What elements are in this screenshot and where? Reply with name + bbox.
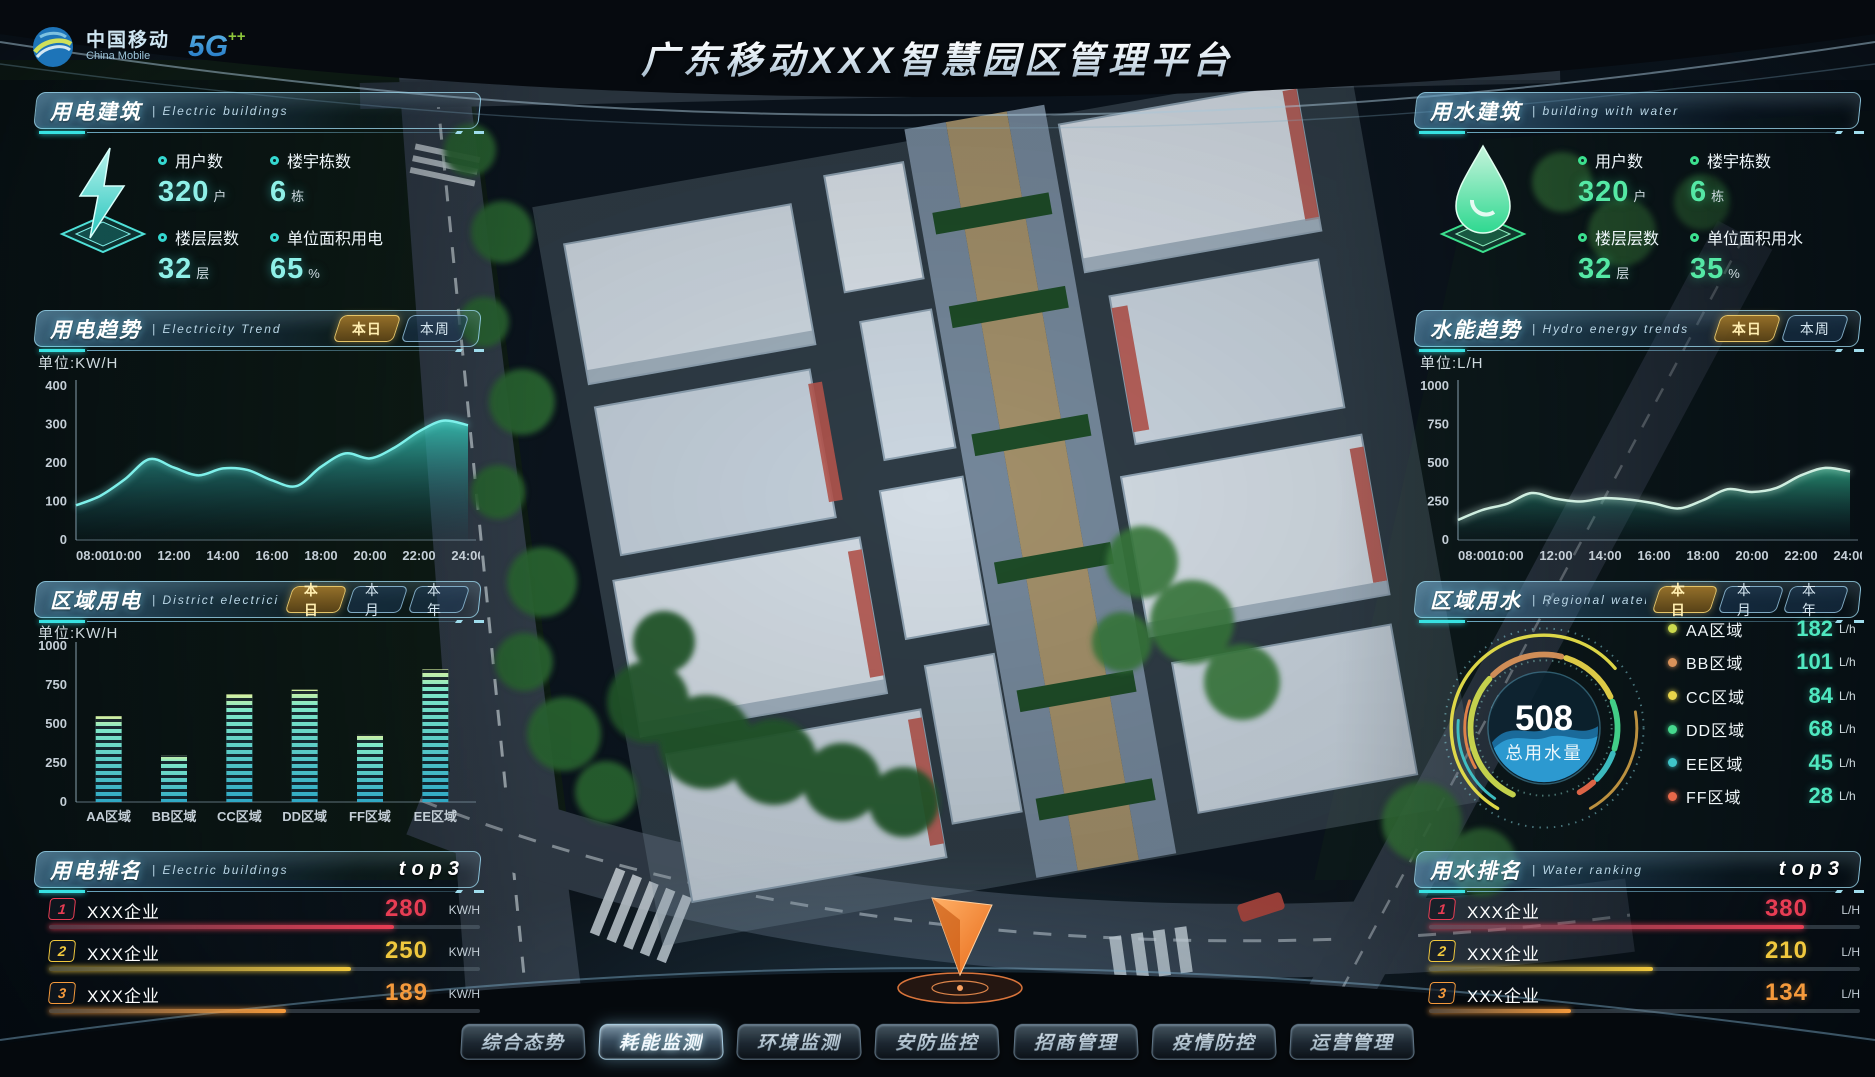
district-electricity-chart: 02505007501000AA区域BB区域CC区域DD区域FF区域EE区域: [30, 638, 480, 828]
panel-title: 用水排名: [1430, 855, 1522, 885]
legend-dot-icon: [1668, 725, 1677, 734]
stat-floors: 楼层层数 32层: [1578, 225, 1690, 286]
panel-title: 区域用电: [50, 585, 142, 615]
hydro-trend-unit: 单位:L/H: [1420, 352, 1484, 373]
stat-value: 65: [270, 253, 304, 285]
rank-name: XXX企业: [1467, 940, 1540, 965]
svg-text:BB区域: BB区域: [152, 809, 197, 824]
nav-tab-label: 安防监控: [895, 1029, 980, 1055]
svg-text:10:00: 10:00: [108, 548, 141, 563]
tab-month-district-electricity[interactable]: 本月: [346, 586, 408, 613]
legend-dot-icon: [1668, 691, 1677, 700]
legend-name: FF区域: [1686, 784, 1742, 808]
legend-row: EE区域45L/h: [1668, 752, 1863, 773]
ranking-row: 2 XXX企业 250 KW/H: [35, 939, 480, 980]
legend-unit: L/h: [1839, 622, 1863, 636]
legend-name: BB区域: [1686, 650, 1743, 674]
rank-badge: 1: [1428, 898, 1456, 920]
rank-name: XXX企业: [87, 940, 160, 965]
rank-name: XXX企业: [87, 898, 160, 923]
stat-users: 用户数 320户: [1578, 148, 1690, 209]
svg-text:16:00: 16:00: [1637, 548, 1670, 563]
stat-value: 6: [1690, 176, 1707, 208]
nav-tab-label: 耗能监测: [619, 1029, 704, 1055]
ranking-row: 3 XXX企业 134 L/H: [1415, 981, 1860, 1022]
legend-value: 68: [1809, 716, 1833, 742]
legend-row: DD区域68L/h: [1668, 719, 1863, 740]
legend-dot-icon: [1668, 658, 1677, 667]
legend-dot-icon: [1668, 792, 1677, 801]
bottom-nav: 综合态势耗能监测环境监测安防监控招商管理疫情防控运营管理: [0, 1023, 1875, 1060]
svg-text:18:00: 18:00: [304, 548, 337, 563]
stat-value: 320: [1578, 176, 1629, 208]
nav-tab-label: 运营管理: [1309, 1029, 1394, 1055]
tab-year-regional-water[interactable]: 本年: [1783, 586, 1849, 613]
legend-unit: L/h: [1839, 655, 1863, 669]
stat-buildings: 楼宇栋数 6栋: [270, 148, 460, 209]
tab-week-electricity-trend[interactable]: 本周: [401, 315, 470, 342]
panel-subtitle: | Electricity Trend: [152, 322, 282, 336]
rank-progress-track: [1429, 967, 1860, 971]
rank-progress-track: [1429, 1009, 1860, 1013]
rank-progress-fill: [49, 925, 394, 929]
nav-tab-6[interactable]: 疫情防控: [1151, 1024, 1277, 1060]
legend-unit: L/h: [1839, 722, 1863, 736]
panel-electricity-trend-header: 用电趋势 | Electricity Trend 本日 本周: [35, 310, 480, 347]
svg-text:22:00: 22:00: [402, 548, 435, 563]
water-ranking-list: 1 XXX企业 380 L/H 2 XXX企业 210 L/H 3 XXX企业 …: [1415, 897, 1860, 1023]
electric-building-stats: 用户数 320户 楼宇栋数 6栋 楼层层数 32层 单位面积用电 65%: [158, 148, 460, 286]
stat-dot-icon: [158, 156, 167, 165]
stat-unit: %: [308, 266, 321, 281]
svg-text:500: 500: [45, 716, 67, 731]
nav-tab-4[interactable]: 安防监控: [875, 1024, 1001, 1060]
stat-label: 单位面积用电: [287, 225, 383, 249]
stat-value: 320: [158, 176, 209, 208]
rank-unit: KW/H: [449, 945, 480, 959]
rank-badge: 2: [48, 940, 76, 962]
rank-name: XXX企业: [87, 982, 160, 1007]
stat-label: 楼层层数: [1595, 225, 1659, 249]
svg-text:750: 750: [1427, 417, 1449, 432]
rank-unit: KW/H: [449, 903, 480, 917]
svg-text:250: 250: [1427, 494, 1449, 509]
panel-electric-building-header: 用电建筑 | Electric buildings: [35, 92, 480, 129]
stat-label: 楼宇栋数: [287, 148, 351, 172]
svg-text:12:00: 12:00: [157, 548, 190, 563]
svg-text:18:00: 18:00: [1686, 548, 1719, 563]
stat-dot-icon: [158, 233, 167, 242]
stat-dot-icon: [1690, 156, 1699, 165]
rank-value: 250: [385, 937, 428, 965]
rank-value: 134: [1765, 979, 1808, 1007]
svg-text:500: 500: [1427, 455, 1449, 470]
page-title: 广东移动XXX智慧园区管理平台: [0, 30, 1875, 84]
rank-progress-track: [49, 925, 480, 929]
panel-title: 用电趋势: [50, 314, 142, 344]
nav-tab-label: 疫情防控: [1171, 1029, 1256, 1055]
rank-value: 280: [385, 895, 428, 923]
lightning-icon: [48, 138, 158, 263]
svg-text:200: 200: [45, 455, 67, 470]
panel-water-ranking-header: 用水排名 | Water ranking top3: [1415, 851, 1860, 888]
total-water-gauge: 508 总用水量: [1428, 612, 1660, 844]
stat-unit: 层: [196, 266, 210, 281]
rank-value: 380: [1765, 895, 1808, 923]
stat-unit: 层: [1616, 266, 1630, 281]
svg-text:24:00: 24:00: [1833, 548, 1862, 563]
legend-unit: L/h: [1839, 756, 1863, 770]
svg-text:08:00: 08:00: [76, 548, 109, 563]
legend-name: EE区域: [1686, 751, 1743, 775]
rank-progress-track: [1429, 925, 1860, 929]
rank-progress-fill: [1429, 925, 1804, 929]
top3-badge: top3: [399, 858, 465, 881]
stat-unit-area-electricity: 单位面积用电 65%: [270, 225, 460, 286]
legend-unit: L/h: [1839, 689, 1863, 703]
stat-value: 35: [1690, 253, 1724, 285]
stat-unit: 户: [213, 189, 227, 204]
svg-text:DD区域: DD区域: [282, 809, 327, 824]
ranking-row: 1 XXX企业 280 KW/H: [35, 897, 480, 938]
svg-text:1000: 1000: [38, 638, 67, 653]
rank-unit: KW/H: [449, 987, 480, 1001]
dashboard-frame: 中国移动 China Mobile 5G ++ 广东移动XXX智慧园区管理平台 …: [0, 0, 1875, 1077]
legend-row: FF区域28L/h: [1668, 786, 1863, 807]
svg-text:14:00: 14:00: [206, 548, 239, 563]
rank-progress-fill: [49, 967, 351, 971]
nav-tab-7[interactable]: 运营管理: [1289, 1024, 1415, 1060]
rank-unit: L/H: [1841, 987, 1860, 1001]
legend-name: CC区域: [1686, 684, 1745, 708]
panel-subtitle: | Hydro energy trends: [1532, 322, 1689, 336]
rank-progress-fill: [49, 1009, 286, 1013]
ranking-row: 2 XXX企业 210 L/H: [1415, 939, 1860, 980]
ranking-row: 1 XXX企业 380 L/H: [1415, 897, 1860, 938]
rank-unit: L/H: [1841, 945, 1860, 959]
electricity-trend-unit: 单位:KW/H: [38, 352, 118, 373]
stat-value: 6: [270, 176, 287, 208]
svg-text:400: 400: [45, 378, 67, 393]
rank-name: XXX企业: [1467, 898, 1540, 923]
stat-unit-area-water: 单位面积用水 35%: [1690, 225, 1875, 286]
stat-dot-icon: [1578, 233, 1587, 242]
svg-text:100: 100: [45, 494, 67, 509]
stat-buildings: 楼宇栋数 6栋: [1690, 148, 1875, 209]
panel-title: 用电排名: [50, 855, 142, 885]
stat-dot-icon: [1578, 156, 1587, 165]
top3-badge: top3: [1779, 858, 1845, 881]
rank-progress-fill: [1429, 1009, 1571, 1013]
legend-value: 84: [1809, 683, 1833, 709]
svg-text:22:00: 22:00: [1784, 548, 1817, 563]
panel-title: 用水建筑: [1430, 96, 1522, 126]
stat-users: 用户数 320户: [158, 148, 270, 209]
svg-text:14:00: 14:00: [1588, 548, 1621, 563]
rank-value: 189: [385, 979, 428, 1007]
panel-title: 水能趋势: [1430, 314, 1522, 344]
panel-subtitle: | District electricity: [152, 593, 279, 607]
tab-today-district-electricity[interactable]: 本日: [284, 586, 346, 613]
svg-text:0: 0: [60, 532, 67, 547]
stat-label: 单位面积用水: [1707, 225, 1803, 249]
svg-text:16:00: 16:00: [255, 548, 288, 563]
stat-floors: 楼层层数 32层: [158, 225, 270, 286]
rank-name: XXX企业: [1467, 982, 1540, 1007]
svg-text:AA区域: AA区域: [86, 809, 131, 824]
svg-text:12:00: 12:00: [1539, 548, 1572, 563]
panel-water-building-header: 用水建筑 | building with water: [1415, 92, 1860, 129]
rank-badge: 3: [48, 982, 76, 1004]
legend-value: 182: [1796, 616, 1833, 642]
legend-value: 45: [1809, 750, 1833, 776]
legend-row: BB区域101L/h: [1668, 652, 1863, 673]
stat-dot-icon: [1690, 233, 1699, 242]
stat-unit: 栋: [1711, 189, 1725, 204]
legend-row: CC区域84L/h: [1668, 685, 1863, 706]
rank-badge: 1: [48, 898, 76, 920]
svg-text:08:00: 08:00: [1458, 548, 1491, 563]
legend-unit: L/h: [1839, 789, 1863, 803]
stat-unit: %: [1728, 266, 1741, 281]
stat-label: 用户数: [1595, 148, 1643, 172]
tab-today-electricity-trend[interactable]: 本日: [333, 315, 402, 342]
rank-value: 210: [1765, 937, 1808, 965]
tab-year-district-electricity[interactable]: 本年: [407, 586, 469, 613]
rank-progress-fill: [1429, 967, 1653, 971]
gauge-label: 总用水量: [1505, 743, 1582, 763]
stat-unit: 栋: [291, 189, 305, 204]
panel-subtitle: | Regional water: [1532, 593, 1646, 607]
tab-week-hydro-trend[interactable]: 本周: [1781, 315, 1850, 342]
panel-district-electricity-header: 区域用电 | District electricity 本日 本月 本年: [35, 581, 480, 618]
stat-label: 楼层层数: [175, 225, 239, 249]
location-marker-icon: [860, 880, 1070, 1010]
svg-text:20:00: 20:00: [353, 548, 386, 563]
svg-text:24:00: 24:00: [451, 548, 480, 563]
svg-text:CC区域: CC区域: [217, 809, 262, 824]
regional-water-legend: AA区域182L/h BB区域101L/h CC区域84L/h DD区域68L/…: [1668, 618, 1863, 819]
legend-dot-icon: [1668, 624, 1677, 633]
panel-subtitle: | Electric buildings: [152, 104, 289, 118]
panel-title: 区域用水: [1430, 585, 1522, 615]
stat-value: 32: [158, 253, 192, 285]
svg-text:10:00: 10:00: [1490, 548, 1523, 563]
panel-electric-ranking-header: 用电排名 | Electric buildings top3: [35, 851, 480, 888]
rank-progress-track: [49, 1009, 480, 1013]
nav-tab-5[interactable]: 招商管理: [1013, 1024, 1139, 1060]
nav-tab-label: 招商管理: [1033, 1029, 1118, 1055]
stat-dot-icon: [270, 233, 279, 242]
tab-today-hydro-trend[interactable]: 本日: [1713, 315, 1782, 342]
rank-badge: 3: [1428, 982, 1456, 1004]
panel-hydro-trend-header: 水能趋势 | Hydro energy trends 本日 本周: [1415, 310, 1860, 347]
panel-subtitle: | Electric buildings: [152, 863, 289, 877]
water-building-stats: 用户数 320户 楼宇栋数 6栋 楼层层数 32层 单位面积用水 35%: [1578, 148, 1875, 286]
stat-unit: 户: [1633, 189, 1647, 204]
svg-text:750: 750: [45, 677, 67, 692]
stat-label: 楼宇栋数: [1707, 148, 1771, 172]
nav-tab-2[interactable]: 耗能监测: [599, 1024, 725, 1060]
legend-name: DD区域: [1686, 717, 1745, 741]
nav-tab-1[interactable]: 综合态势: [460, 1024, 586, 1060]
svg-text:FF区域: FF区域: [349, 809, 391, 824]
tab-month-regional-water[interactable]: 本月: [1717, 586, 1783, 613]
rank-badge: 2: [1428, 940, 1456, 962]
svg-text:300: 300: [45, 417, 67, 432]
electric-ranking-list: 1 XXX企业 280 KW/H 2 XXX企业 250 KW/H 3 XXX企…: [35, 897, 480, 1023]
legend-dot-icon: [1668, 758, 1677, 767]
legend-value: 28: [1809, 783, 1833, 809]
nav-tab-label: 环境监测: [757, 1029, 842, 1055]
ranking-row: 3 XXX企业 189 KW/H: [35, 981, 480, 1022]
panel-subtitle: | Water ranking: [1532, 863, 1643, 877]
stat-value: 32: [1578, 253, 1612, 285]
svg-text:20:00: 20:00: [1735, 548, 1768, 563]
electricity-trend-chart: 010020030040008:0010:0012:0014:0016:0018…: [30, 372, 480, 568]
rank-unit: L/H: [1841, 903, 1860, 917]
gauge-value: 508: [1515, 699, 1573, 738]
legend-value: 101: [1796, 649, 1833, 675]
hydro-trend-chart: 0250500750100008:0010:0012:0014:0016:001…: [1412, 372, 1862, 568]
svg-text:1000: 1000: [1420, 378, 1449, 393]
stat-dot-icon: [270, 156, 279, 165]
svg-text:250: 250: [45, 755, 67, 770]
svg-text:EE区域: EE区域: [414, 809, 457, 824]
stat-label: 用户数: [175, 148, 223, 172]
svg-text:0: 0: [60, 794, 67, 809]
legend-row: AA区域182L/h: [1668, 618, 1863, 639]
panel-title: 用电建筑: [50, 96, 142, 126]
legend-name: AA区域: [1686, 617, 1743, 641]
nav-tab-3[interactable]: 环境监测: [737, 1024, 863, 1060]
panel-subtitle: | building with water: [1532, 104, 1679, 118]
nav-tab-label: 综合态势: [481, 1029, 566, 1055]
rank-progress-track: [49, 967, 480, 971]
tab-today-regional-water[interactable]: 本日: [1652, 586, 1718, 613]
water-drop-icon: [1428, 138, 1538, 263]
svg-text:0: 0: [1442, 532, 1449, 547]
